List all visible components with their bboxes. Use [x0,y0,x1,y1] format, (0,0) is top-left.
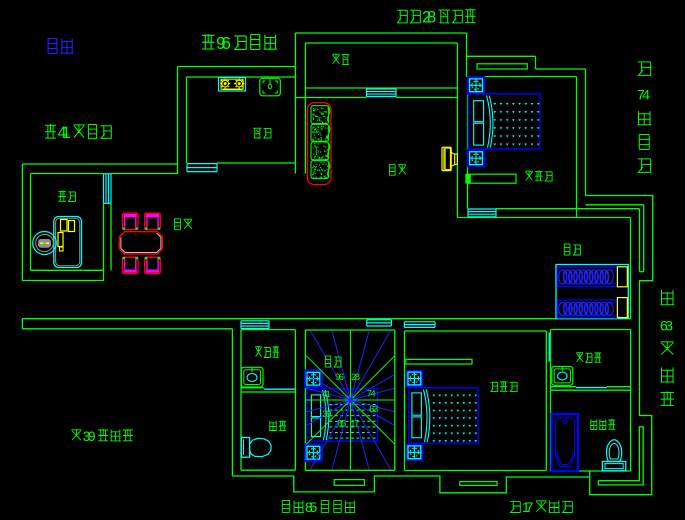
svg-text:96: 96 [335,372,344,383]
svg-text:28: 28 [422,9,436,27]
svg-text:17: 17 [350,419,359,430]
svg-text:85: 85 [305,499,318,515]
svg-text:74: 74 [367,389,376,400]
svg-text:28: 28 [351,372,360,383]
svg-text:41: 41 [58,124,71,142]
svg-text:96: 96 [216,33,231,53]
svg-text:63: 63 [660,318,673,334]
svg-text:17: 17 [522,499,534,515]
svg-text:63: 63 [369,404,378,415]
svg-text:39: 39 [322,409,331,420]
svg-text:85: 85 [337,419,346,430]
svg-text:74: 74 [637,87,650,103]
svg-text:39: 39 [83,429,96,444]
svg-text:41: 41 [322,389,331,400]
